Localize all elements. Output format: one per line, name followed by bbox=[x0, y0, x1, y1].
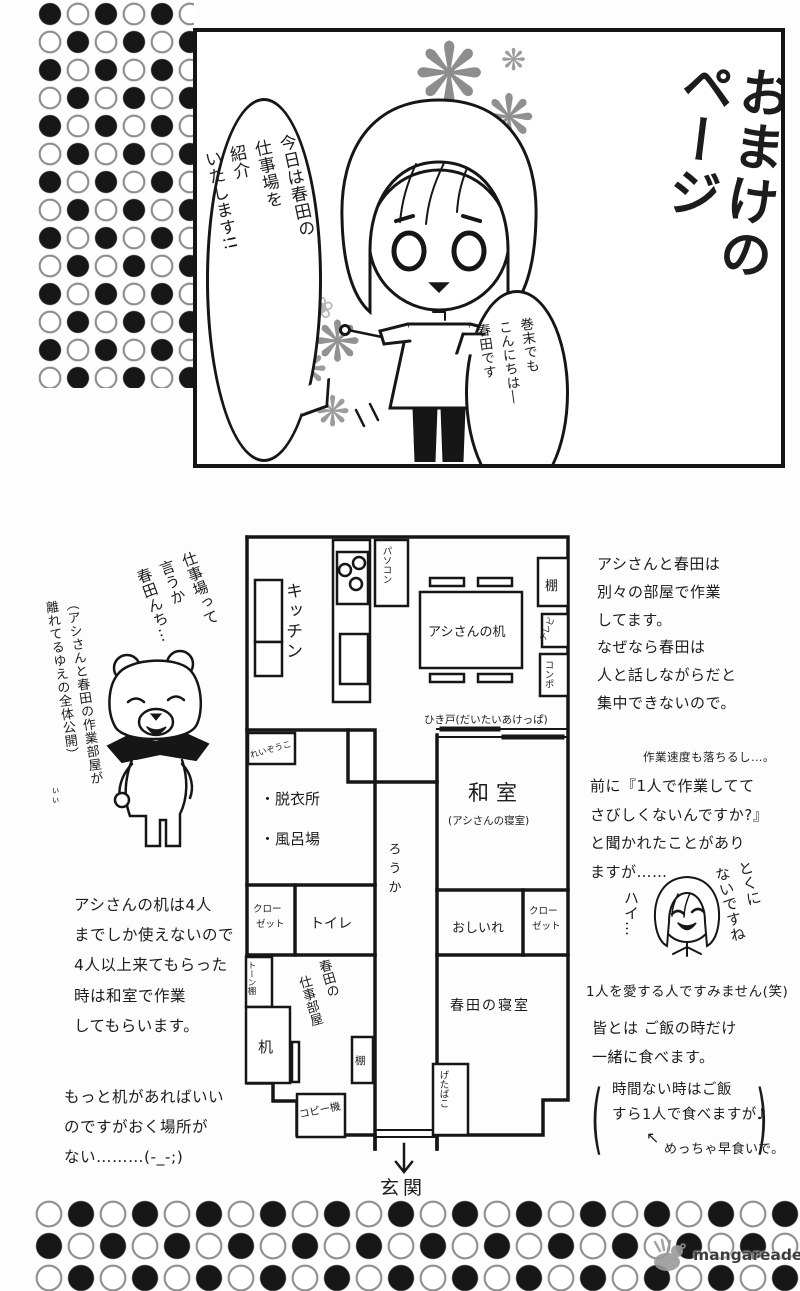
mangareader-logo-icon bbox=[650, 1238, 690, 1272]
bonus-panel: ❋ ❋ ❋ ❀ ❋ ❀ ❋ ❋ ❋ ❋ おまけの ページ 今日は春田の 仕事場を… bbox=[193, 28, 785, 468]
arrow-upleft-icon: ↖ bbox=[646, 1128, 660, 1147]
right-para-1: アシさんと春田は 別々の部屋で作業 してます。 なぜなら春田は 人と話しながらだ… bbox=[597, 551, 737, 718]
manga-bonus-page: ❋ ❋ ❋ ❀ ❋ ❀ ❋ ❋ ❋ ❋ おまけの ページ 今日は春田の 仕事場を… bbox=[0, 0, 800, 1291]
label-washroom-2: ・風呂場 bbox=[260, 830, 320, 848]
label-washitsu-sub: (アシさんの寝室) bbox=[448, 814, 529, 827]
right-para-1-note: 作業速度も落ちるし…。 bbox=[643, 749, 775, 765]
reply-left: ハイ… bbox=[621, 890, 642, 960]
reply-caption: 1人を愛する人ですみません(笑) bbox=[586, 980, 788, 1000]
label-getabako: げたばこ bbox=[438, 1070, 450, 1108]
label-closet-right-1: クロー bbox=[529, 906, 558, 917]
right-para-3-note: めっちゃ早食いで。 bbox=[664, 1138, 785, 1157]
label-toilet: トイレ bbox=[310, 916, 352, 932]
label-entrance: 玄関 bbox=[380, 1177, 426, 1199]
right-para-3: 皆とは ご飯の時だけ 一緒に食べます。 bbox=[592, 1014, 737, 1071]
label-assistant-desk: アシさんの机 bbox=[428, 625, 505, 640]
label-washroom-1: ・脱衣所 bbox=[260, 790, 320, 808]
label-desk: 机 bbox=[258, 1038, 273, 1056]
label-shelf-top: 棚 bbox=[545, 579, 558, 594]
label-haruta-room-1: 春田の bbox=[315, 958, 341, 1000]
label-closet-left-2: ゼット bbox=[256, 918, 285, 930]
label-sliding-door: ひき戸(だいたいあけっぱ) bbox=[424, 714, 548, 726]
label-pc: パソコン bbox=[381, 546, 393, 584]
floor-plan: キッチン パソコン れいぞうこ アシさんの机 棚 テレビ コンポ ひき戸(だいた… bbox=[242, 530, 578, 1202]
label-shelf-small: 棚 bbox=[355, 1054, 366, 1067]
left-note-1: アシさんの机は4人 までしか使えないので 4人以上来てもらった 時は和室で作業 … bbox=[74, 890, 234, 1041]
label-closet-left-1: クロー bbox=[253, 904, 282, 915]
label-compo: コンポ bbox=[543, 660, 555, 689]
left-note-2: もっと机があればいい のですがおく場所が ない………(-_-;) bbox=[64, 1082, 224, 1173]
watermark-text: mangareader.net bbox=[693, 1246, 800, 1264]
label-oshiire: おしいれ bbox=[452, 921, 504, 936]
label-kitchen: キッチン bbox=[282, 582, 302, 662]
label-closet-right-2: ゼット bbox=[532, 920, 561, 932]
page-title: おまけの ページ bbox=[616, 53, 785, 378]
right-para-3-paren: 時間ない時はご飯 すら1人で食べますが♪ bbox=[612, 1078, 766, 1129]
bear-mascot bbox=[100, 648, 220, 863]
label-tone-shelf: トーン棚 bbox=[246, 961, 256, 996]
halftone-top-left bbox=[36, 0, 194, 388]
bear-note-small: ぃぃ bbox=[47, 786, 60, 816]
watermark: mangareader.net bbox=[650, 1238, 800, 1272]
paren-open: ( bbox=[591, 1076, 603, 1165]
label-haruta-bedroom: 春田の寝室 bbox=[450, 997, 530, 1014]
flower-icon: ❋ bbox=[501, 46, 526, 76]
label-hallway: ろうか bbox=[386, 842, 401, 899]
label-washitsu: 和室 bbox=[468, 781, 524, 805]
